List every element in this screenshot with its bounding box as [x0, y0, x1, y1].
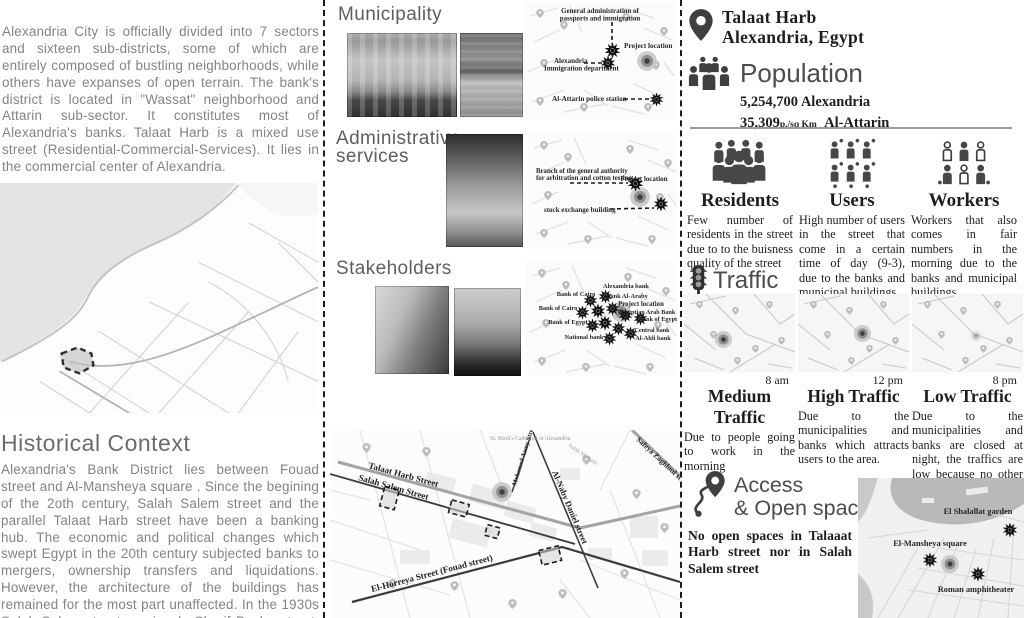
left-column: Alexandria City is officially divided in… — [0, 0, 322, 618]
map-label: for arbitration and cotton testing — [536, 175, 632, 182]
bullseye-marker — [492, 482, 512, 502]
administrative-map: Branch of the general authority for arbi… — [528, 134, 676, 249]
municipality-map: General administration of passports and … — [524, 2, 676, 119]
administrative-services-title: Administrativeservices — [336, 130, 461, 166]
map-label-square: El-Mansheya square — [893, 539, 967, 548]
traffic-light-icon — [688, 264, 709, 297]
place-header: Talaat Harb Alexandria, Egypt — [688, 8, 864, 47]
poi-label-cathedral: St. Mark's Cathedral in Alexandria — [490, 436, 571, 442]
stakeholders-map: Alexandria bank Bank of Cairo Bank Al-Ar… — [526, 262, 677, 376]
map-label: Bank of Cairo — [539, 305, 578, 312]
group-description: Few number of residents in the street du… — [687, 213, 793, 271]
access-open-spaces-section: Access & Open spaces No open spaces in T… — [684, 462, 1024, 618]
residents-crowd-icon — [709, 138, 771, 188]
traffic-title: Traffic — [713, 267, 778, 295]
stakeholders-title: Stakeholders — [336, 260, 452, 278]
map-label: Branch of the general authority — [536, 168, 628, 175]
population-stat-alexandria: 5,254,700 Alexandria — [740, 92, 889, 113]
administrative-photo-building — [446, 134, 523, 247]
access-description: No open spaces in Talaaat Harb street no… — [688, 528, 852, 577]
traffic-map-8pm — [912, 294, 1023, 372]
traffic-level: Medium Traffic — [684, 386, 795, 428]
map-label: Bank of Egypt — [639, 316, 677, 323]
map-label-police: Al-Attarin police station — [552, 95, 627, 103]
place-title: Talaat Harb — [722, 8, 864, 28]
middle-column: Municipality General administration of p… — [330, 0, 680, 618]
map-label-stock: stock exchange building — [544, 206, 616, 214]
population-stat-attarin: 35,309p./sq Km Al-Attarin — [740, 113, 889, 134]
map-label: Bank of Egypt — [548, 319, 588, 326]
place-subtitle: Alexandria, Egypt — [722, 28, 864, 48]
historical-context-paragraph: Alexandria's Bank District lies between … — [1, 462, 319, 618]
poster-canvas: Alexandria City is officially divided in… — [0, 0, 1024, 618]
route-pin-icon — [690, 470, 732, 520]
right-column: Talaat Harb Alexandria, Egypt Population… — [684, 0, 1024, 618]
population-title: Population — [740, 58, 863, 89]
section-rule — [690, 127, 1012, 129]
group-workers: Workers Workers that also comes in fair … — [908, 136, 1020, 299]
group-description: Workers that also comes in fair numbers … — [911, 213, 1017, 299]
stakeholders-photo-facade — [454, 288, 521, 376]
map-label: Bank of Cairo — [557, 291, 596, 298]
municipality-photo-street — [460, 33, 523, 117]
traffic-level: High Traffic — [798, 386, 909, 407]
traffic-level: Low Traffic — [912, 386, 1023, 407]
traffic-header: Traffic — [688, 264, 778, 297]
column-divider-right — [680, 0, 682, 618]
location-pin-icon — [688, 8, 714, 42]
group-name: Users — [799, 190, 905, 212]
bullseye-marker — [630, 187, 650, 207]
group-description: High number of users in the street that … — [799, 213, 905, 299]
group-users: Users High number of users in the street… — [796, 136, 908, 299]
workers-people-icon — [938, 138, 990, 188]
map-label-project: Project location — [624, 42, 672, 50]
historical-context-title: Historical Context — [1, 430, 322, 457]
traffic-description: Due to the municipalities and banks whic… — [798, 409, 909, 467]
population-header: Population — [686, 56, 863, 90]
map-label: passports and immigration — [560, 15, 641, 23]
population-people-icon — [686, 56, 732, 90]
map-label: Immigration department — [544, 65, 620, 73]
municipality-photo-building — [347, 33, 457, 117]
map-label: National bank — [565, 334, 604, 341]
intro-paragraph: Alexandria City is officially divided in… — [2, 24, 319, 176]
map-label-project: Project location — [620, 175, 667, 183]
bullseye-marker — [637, 51, 657, 71]
group-name: Residents — [687, 190, 793, 212]
open-spaces-map: El Shalallat garden El-Mansheya square R… — [858, 478, 1024, 618]
column-divider-left — [323, 0, 325, 618]
street-network-map: Talaat Harb Street Salah Salem Street El… — [330, 430, 680, 618]
map-label: Egyptian Arab Bank — [621, 309, 676, 316]
stakeholders-photo-corner-building — [375, 286, 449, 374]
bullseye-marker — [941, 555, 959, 573]
group-name: Workers — [911, 190, 1017, 212]
users-grid-icon — [826, 138, 878, 188]
map-label: Alexandria bank — [603, 283, 649, 290]
municipality-title: Municipality — [338, 6, 442, 24]
map-label: Bank Al-Araby — [606, 293, 649, 300]
map-label: Central bank — [634, 327, 670, 334]
map-label-amphitheater: Roman amphitheater — [938, 585, 1015, 594]
map-label: Al-Ahli bank — [635, 335, 671, 342]
traffic-map-8am — [684, 294, 795, 372]
map-label-garden: El Shalallat garden — [944, 507, 1013, 516]
alexandria-city-map — [0, 183, 318, 413]
traffic-map-12pm — [798, 294, 909, 372]
map-label: Project location — [618, 301, 664, 308]
